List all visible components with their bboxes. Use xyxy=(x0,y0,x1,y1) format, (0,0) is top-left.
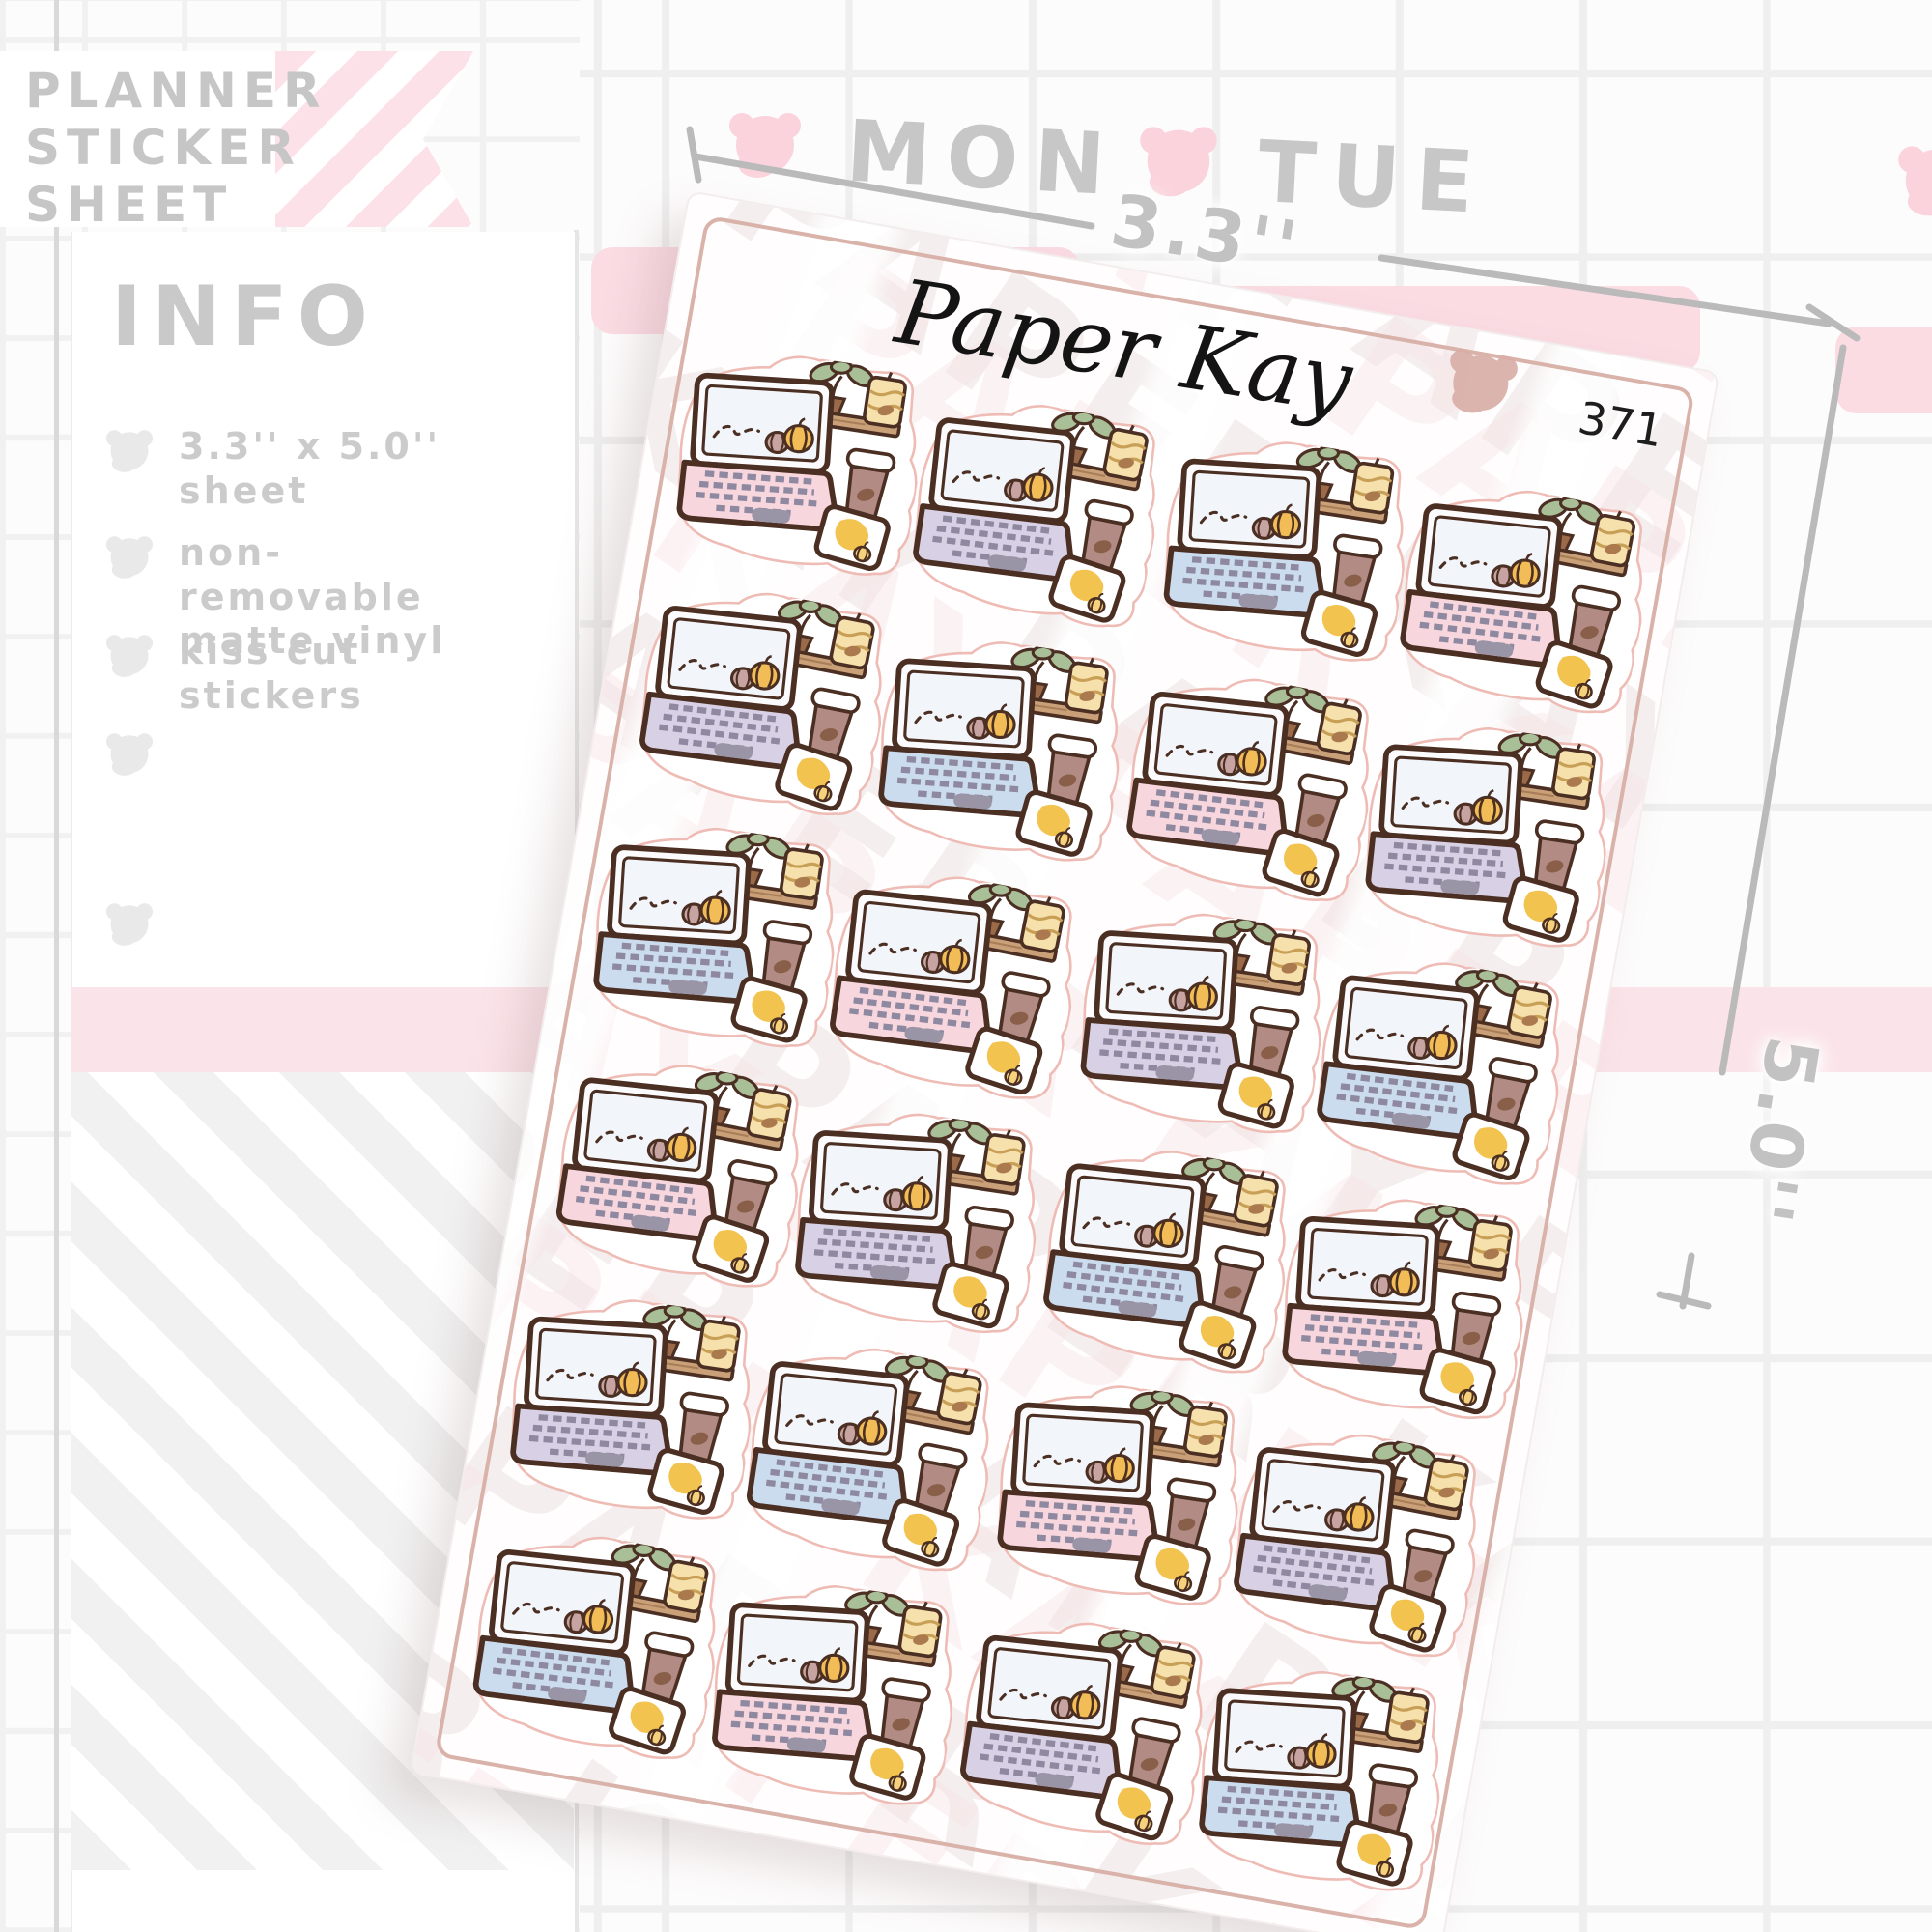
laptop-sticker xyxy=(1264,1183,1545,1457)
left-column-divider xyxy=(54,0,59,1932)
info-heading: INFO xyxy=(111,269,378,365)
laptop-sticker xyxy=(1213,1413,1502,1696)
laptop-sticker xyxy=(536,1044,825,1327)
laptop-sticker xyxy=(1023,1130,1312,1413)
day-highlight-bar xyxy=(1835,327,1932,413)
laptop-sticker xyxy=(778,1097,1058,1371)
bear-bullet-icon xyxy=(98,900,161,951)
info-item-label: 3.3'' x 5.0'' sheet xyxy=(179,425,526,513)
laptop-sticker xyxy=(940,1602,1229,1885)
bear-icon xyxy=(1429,341,1533,430)
list-item xyxy=(98,728,526,781)
banner-flag: PLANNER STICKER SHEET xyxy=(0,51,473,227)
banner-line: STICKER xyxy=(25,120,327,177)
list-item xyxy=(98,898,526,951)
bear-icon xyxy=(1884,141,1932,224)
bear-bullet-icon xyxy=(98,533,161,583)
laptop-sticker xyxy=(452,1516,741,1799)
laptop-sticker xyxy=(1379,469,1668,753)
laptop-sticker xyxy=(1106,658,1395,941)
laptop-sticker xyxy=(493,1284,773,1557)
banner-title: PLANNER STICKER SHEET xyxy=(25,63,327,234)
laptop-sticker xyxy=(1063,897,1343,1171)
banner-line: PLANNER xyxy=(25,63,327,120)
banner-line: SHEET xyxy=(25,177,327,234)
laptop-sticker xyxy=(1348,711,1628,984)
list-item: kiss cut stickers xyxy=(98,630,526,718)
laptop-sticker xyxy=(1181,1655,1462,1928)
laptop-sticker xyxy=(659,340,939,613)
laptop-sticker xyxy=(1296,942,1585,1225)
day-header-mon: MON xyxy=(843,101,1122,215)
laptop-sticker xyxy=(1146,426,1426,699)
bear-bullet-icon xyxy=(98,632,161,682)
laptop-sticker xyxy=(726,1327,1015,1610)
product-image: MON TUE INFO 3.3'' x 5.0'' sheet non-rem… xyxy=(0,0,1932,1932)
list-item: 3.3'' x 5.0'' sheet xyxy=(98,425,526,513)
laptop-sticker xyxy=(893,384,1181,668)
laptop-sticker xyxy=(861,625,1141,898)
laptop-sticker xyxy=(695,1569,975,1842)
bear-icon xyxy=(717,108,813,185)
laptop-sticker xyxy=(810,856,1098,1139)
bear-bullet-icon xyxy=(98,427,161,477)
laptop-sticker xyxy=(576,811,856,1085)
laptop-sticker xyxy=(619,572,908,855)
bear-bullet-icon xyxy=(98,730,161,781)
laptop-sticker xyxy=(980,1369,1260,1642)
info-item-label: kiss cut stickers xyxy=(179,630,526,718)
